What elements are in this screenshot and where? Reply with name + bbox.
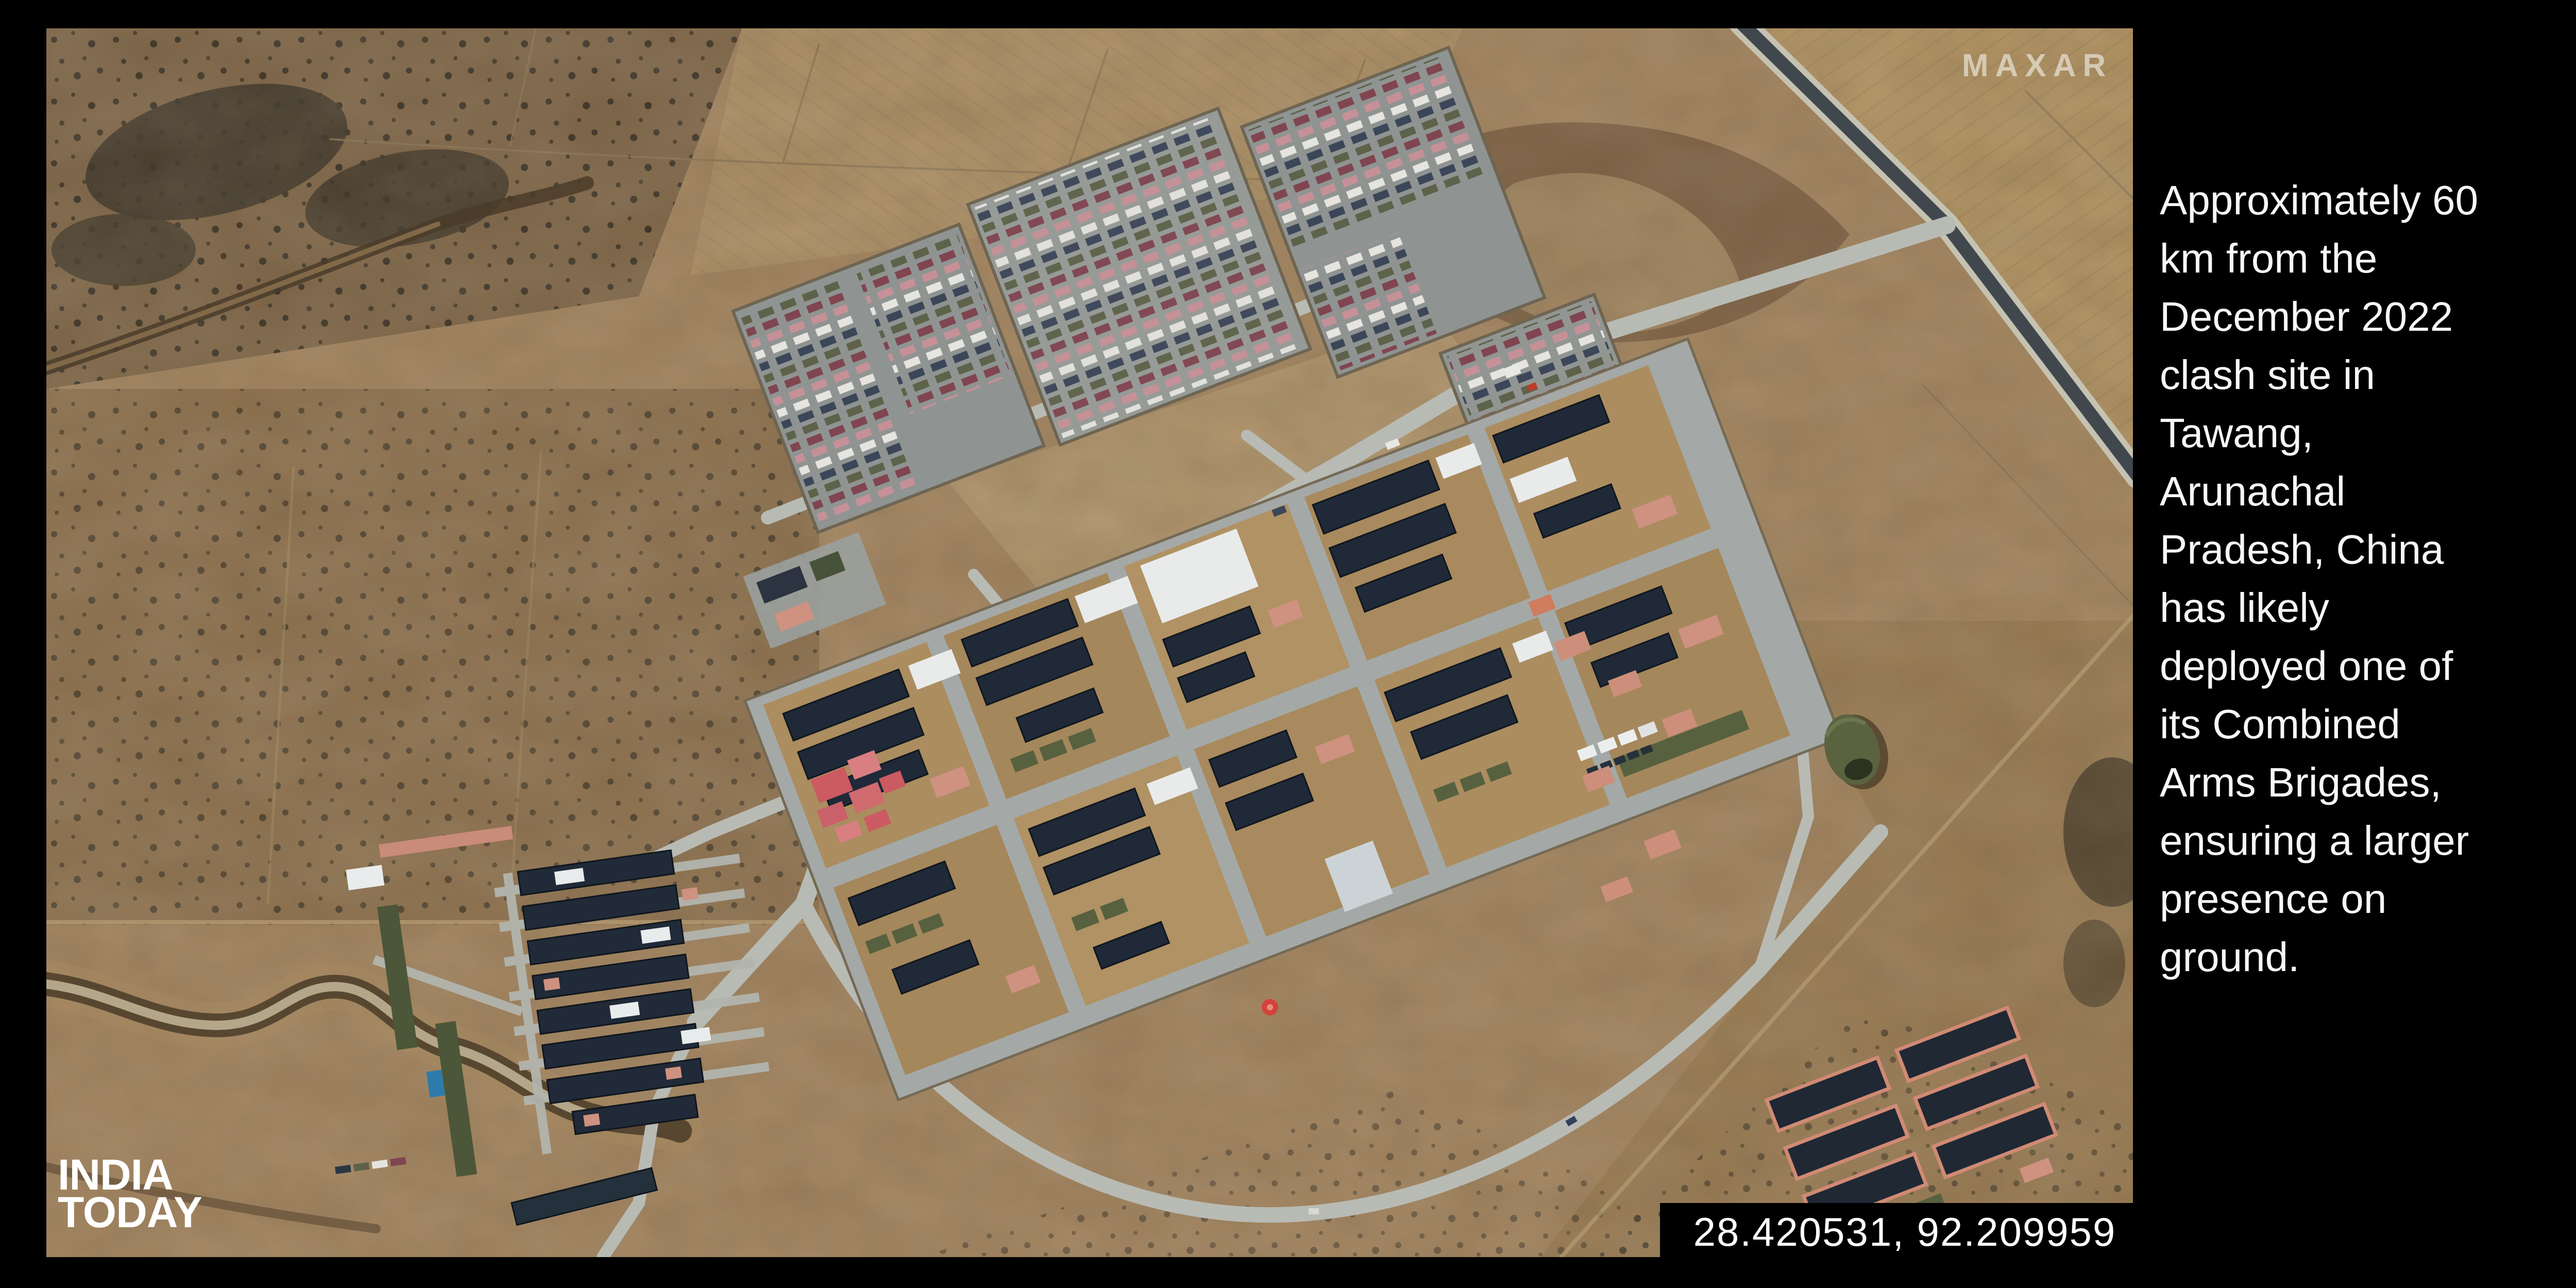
- caption-line: km from the: [2160, 229, 2567, 287]
- news-graphic: MAXAR Approximately 60 km from the Decem…: [0, 0, 2576, 1288]
- caption-line: has likely: [2160, 579, 2567, 637]
- india-today-logo: INDIA TODAY: [58, 1156, 202, 1231]
- coordinates-value: 28.420531, 92.209959: [1693, 1209, 2116, 1256]
- caption-line: presence on: [2160, 870, 2567, 928]
- caption-line: December 2022: [2160, 287, 2567, 346]
- caption-line: deployed one of: [2160, 637, 2567, 695]
- caption-line: Tawang,: [2160, 404, 2567, 462]
- caption-line: its Combined: [2160, 695, 2567, 753]
- caption-text: Approximately 60 km from the December 20…: [2160, 171, 2567, 986]
- maxar-watermark: MAXAR: [1962, 47, 2112, 84]
- caption-line: Pradesh, China: [2160, 520, 2567, 579]
- satellite-image: [46, 28, 2133, 1257]
- caption-line: Arunachal: [2160, 462, 2567, 520]
- logo-line-today: TODAY: [58, 1194, 202, 1231]
- caption-line: clash site in: [2160, 346, 2567, 404]
- caption-line: Approximately 60: [2160, 171, 2567, 229]
- caption-line: ground.: [2160, 928, 2567, 986]
- caption-line: ensuring a larger: [2160, 811, 2567, 870]
- coordinates-badge: 28.420531, 92.209959: [1660, 1203, 2149, 1261]
- caption-line: Arms Brigades,: [2160, 753, 2567, 811]
